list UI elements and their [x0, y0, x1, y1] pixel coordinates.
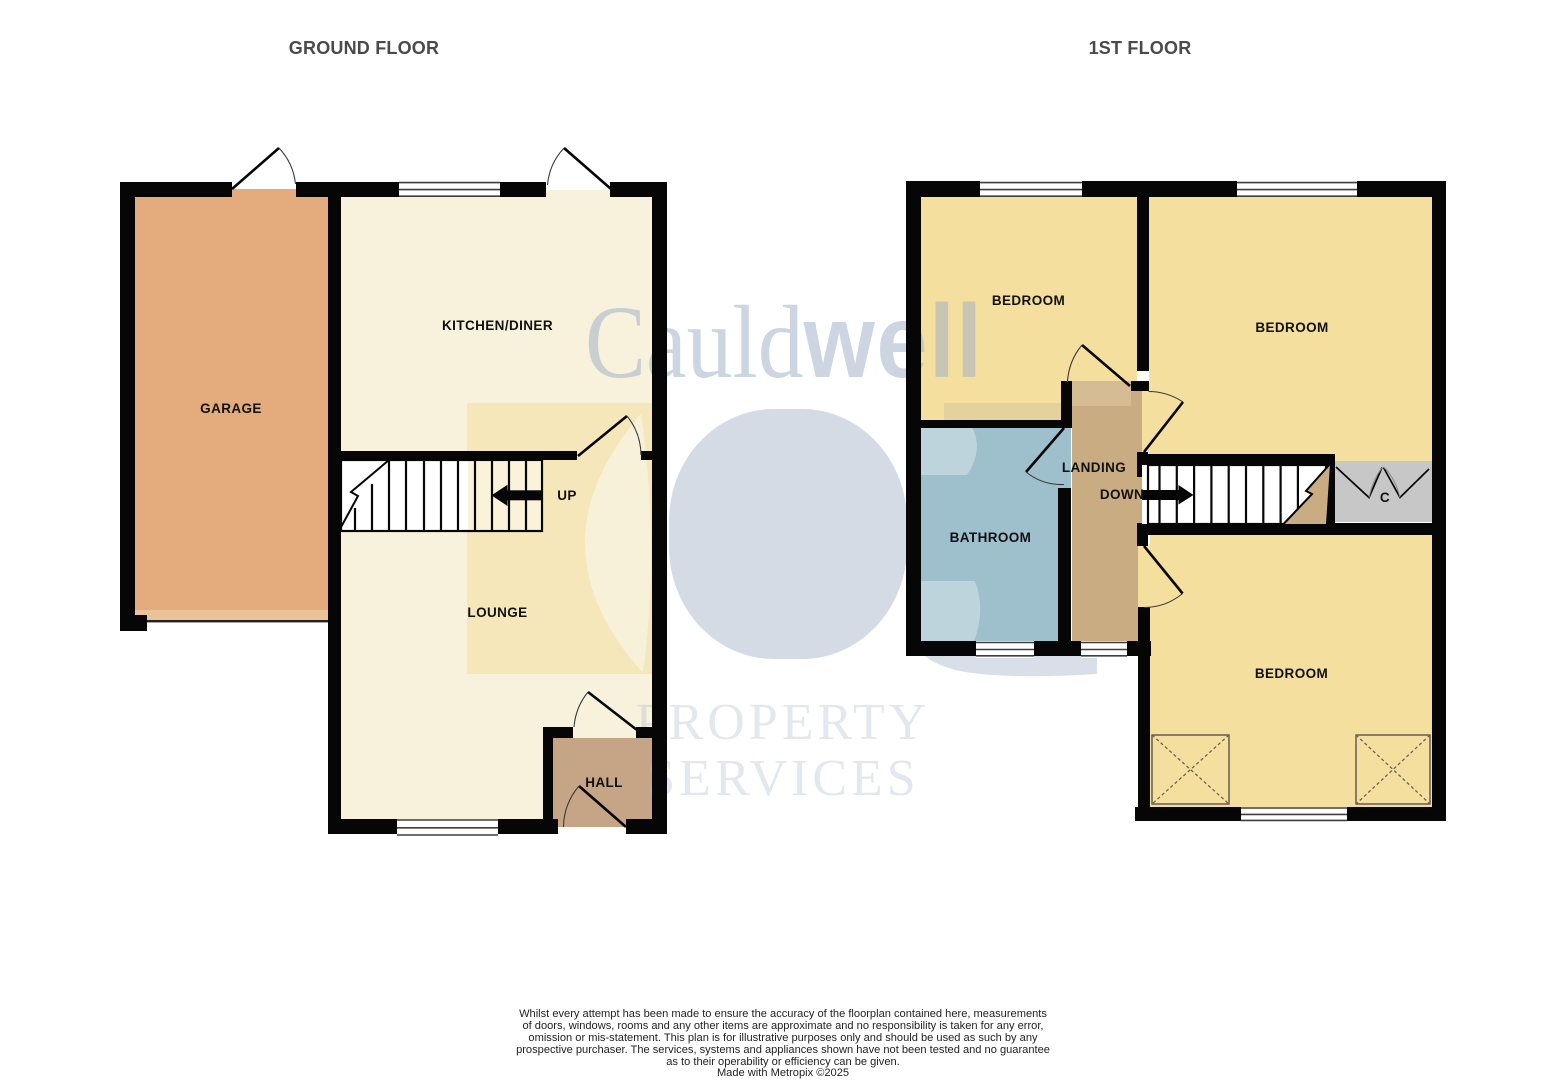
- svg-text:prospective purchaser. The ser: prospective purchaser. The services, sys…: [516, 1044, 1050, 1056]
- svg-text:1ST FLOOR: 1ST FLOOR: [1089, 38, 1192, 58]
- svg-text:Made with Metropix ©2025: Made with Metropix ©2025: [717, 1067, 849, 1079]
- svg-text:BEDROOM: BEDROOM: [1255, 320, 1328, 335]
- svg-text:Whilst every attempt has been: Whilst every attempt has been made to en…: [519, 1008, 1047, 1020]
- svg-text:DOWN: DOWN: [1100, 487, 1144, 502]
- svg-text:GARAGE: GARAGE: [200, 401, 262, 416]
- svg-text:GROUND FLOOR: GROUND FLOOR: [289, 38, 439, 58]
- svg-text:SERVICES: SERVICES: [646, 750, 919, 807]
- svg-text:omission or mis-statement. Thi: omission or mis-statement. This plan is …: [528, 1032, 1038, 1044]
- svg-text:C: C: [1380, 490, 1390, 505]
- svg-text:LANDING: LANDING: [1062, 460, 1126, 475]
- svg-text:BEDROOM: BEDROOM: [1255, 666, 1328, 681]
- svg-text:of doors, windows, rooms and a: of doors, windows, rooms and any other i…: [522, 1020, 1043, 1032]
- svg-text:HALL: HALL: [585, 775, 623, 790]
- svg-text:BEDROOM: BEDROOM: [992, 293, 1065, 308]
- svg-text:PROPERTY: PROPERTY: [636, 694, 931, 751]
- svg-text:LOUNGE: LOUNGE: [467, 605, 527, 620]
- svg-text:KITCHEN/DINER: KITCHEN/DINER: [442, 318, 553, 333]
- svg-text:BATHROOM: BATHROOM: [950, 530, 1032, 545]
- svg-text:Cauldwell: Cauldwell: [585, 283, 984, 401]
- svg-text:UP: UP: [557, 488, 577, 503]
